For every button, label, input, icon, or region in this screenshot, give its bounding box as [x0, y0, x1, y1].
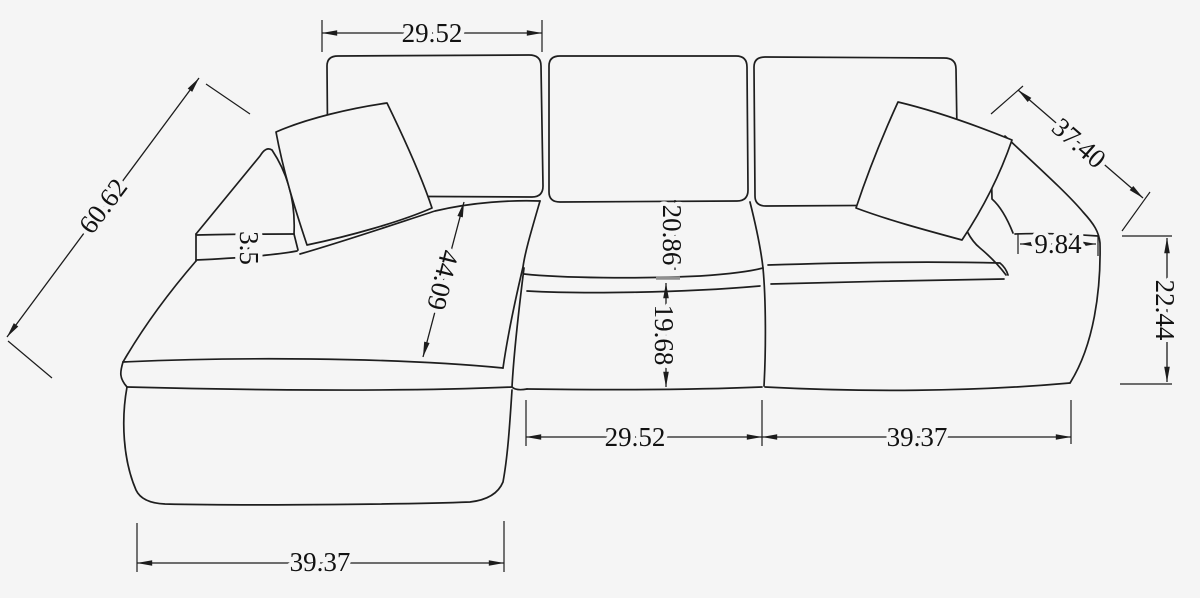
dimension-value: 60.62 — [73, 173, 134, 240]
dim-left-arm-pad-thickness: 3.5 — [234, 231, 264, 265]
dim-middle-seat-width: 29.52 — [526, 400, 762, 452]
left-arm-outer-edge — [196, 149, 294, 234]
dimension-value: 19.68 — [649, 305, 679, 366]
dimension-value: 9.84 — [1034, 229, 1082, 259]
chaise-pad-left-edge — [121, 362, 127, 387]
extension-line — [8, 84, 250, 378]
dimension-value: 44.09 — [421, 247, 465, 313]
dimension-value: 29.52 — [605, 422, 666, 452]
right-seat-lip — [768, 262, 1008, 284]
chaise-left-silhouette — [123, 261, 196, 362]
chaise-pad-top-edge — [123, 359, 503, 368]
middle-seat-lip — [524, 268, 763, 293]
seat-division-left-inner — [512, 268, 527, 390]
back-cushion-middle — [549, 56, 748, 202]
dim-right-arm-height: 22.44 — [1120, 236, 1180, 384]
chaise-pad-bottom-edge — [127, 387, 512, 390]
dim-chaise-seat-length: 44.09 — [421, 202, 465, 357]
dimension-value: 3.5 — [234, 231, 264, 265]
middle-base-bottom — [527, 387, 762, 390]
dim-seat-depth: 20.86 — [657, 200, 687, 270]
dim-chaise-width: 39.37 — [137, 521, 504, 577]
dimension-value: 39.37 — [290, 547, 351, 577]
extension-line — [991, 86, 1150, 231]
dim-right-section-width: 39.37 — [762, 400, 1071, 452]
dim-top-back-cushion-width: 29.52 — [322, 18, 542, 52]
diagram-canvas: 29.52 60.62 3.5 44.09 20.86 19.68 37.40 — [0, 0, 1200, 598]
dim-seat-front-height: 19.68 — [649, 283, 679, 387]
sofa-dimension-diagram: 29.52 60.62 3.5 44.09 20.86 19.68 37.40 — [0, 0, 1200, 598]
chaise-base — [124, 387, 512, 505]
right-arm-outer-edge — [1005, 136, 1100, 383]
dimension-value: 20.86 — [657, 205, 687, 266]
right-base-bottom — [765, 383, 1070, 390]
dim-right-arm-slope-depth: 37.40 — [991, 86, 1150, 231]
dimension-value: 22.44 — [1150, 280, 1180, 341]
dim-chaise-total-depth: 60.62 — [7, 78, 250, 378]
dimension-value: 37.40 — [1046, 112, 1112, 174]
seat-division-middle — [750, 202, 765, 386]
dimension-value: 39.37 — [887, 422, 948, 452]
dimension-value: 29.52 — [402, 18, 463, 48]
